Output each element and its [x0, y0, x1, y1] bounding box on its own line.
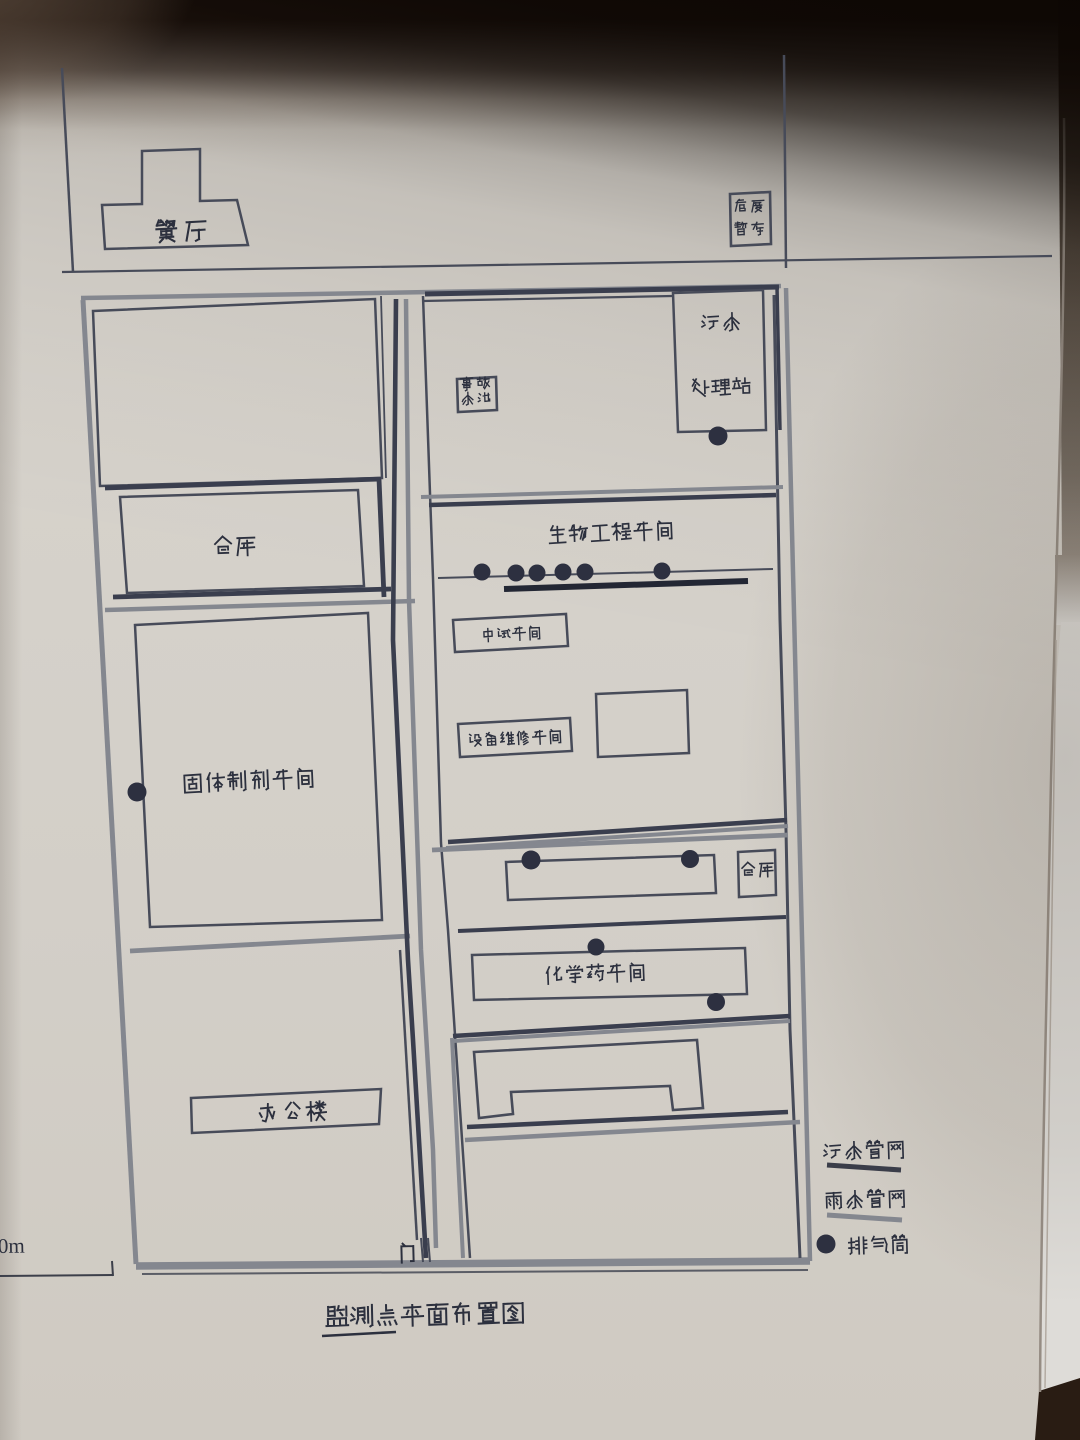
svg-text:0m: 0m	[0, 1234, 25, 1258]
